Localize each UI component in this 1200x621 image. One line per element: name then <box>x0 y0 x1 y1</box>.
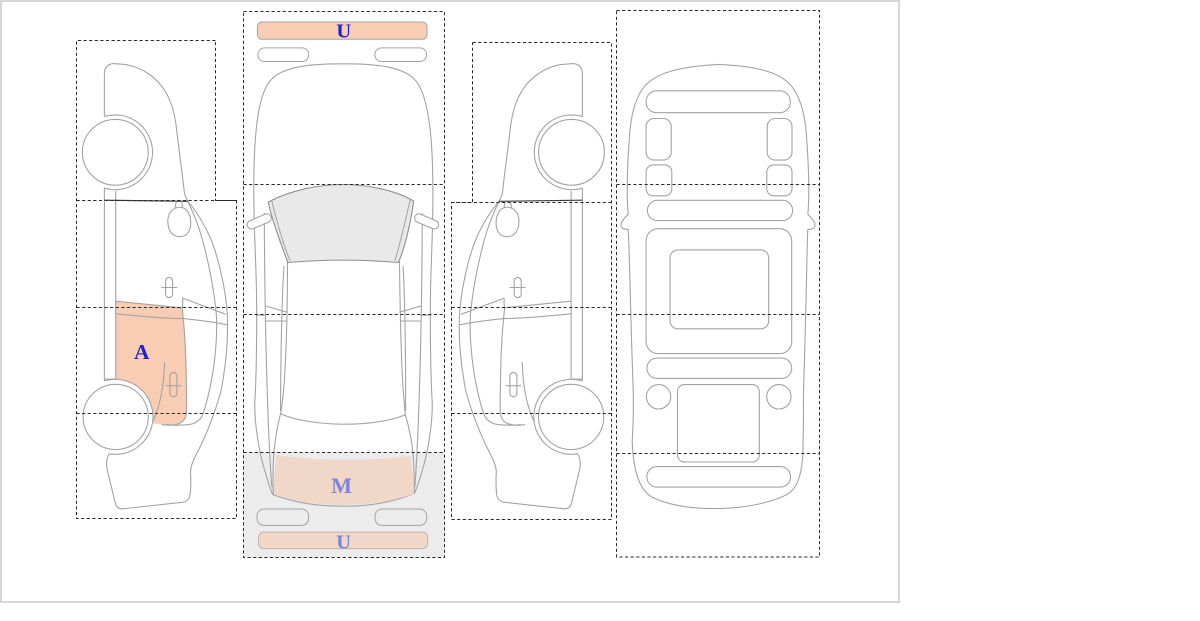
svg-text:M: M <box>331 473 352 498</box>
svg-text:U: U <box>336 21 351 43</box>
svg-text:A: A <box>134 340 150 364</box>
svg-text:U: U <box>336 531 351 553</box>
